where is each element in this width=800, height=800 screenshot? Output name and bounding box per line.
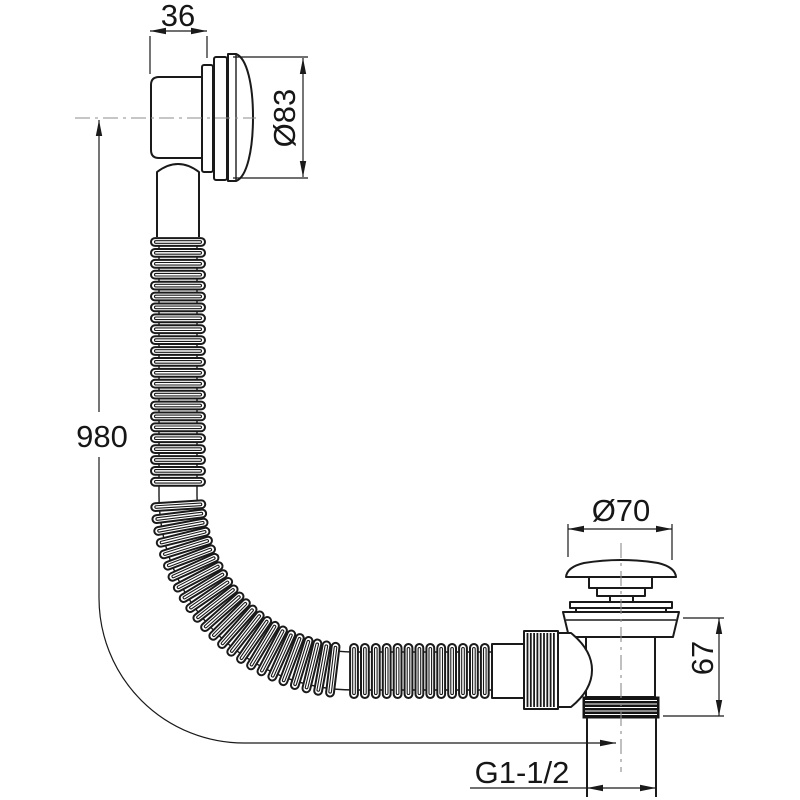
overflow-tube [157, 164, 199, 237]
overflow-assembly [151, 54, 253, 237]
outlet-pipe [587, 718, 656, 797]
hose-corrugation-ribs [151, 238, 489, 698]
bath-waste-overflow-drawing: 36 Ø83 980 Ø70 67 G1-1/2 [0, 0, 800, 800]
dimension-plug-diameter [568, 524, 672, 560]
hose-end-tube [492, 644, 524, 698]
flex-hose [151, 238, 494, 698]
label-plug-diameter: Ø70 [592, 493, 651, 528]
label-hose-length: 980 [76, 419, 128, 454]
label-waste-height: 67 [685, 641, 720, 675]
technical-drawing-canvas: 36 Ø83 980 Ø70 67 G1-1/2 [0, 0, 800, 800]
compression-nut-knurling [528, 633, 554, 707]
label-thread-size: G1-1/2 [475, 755, 570, 790]
dimension-overflow-width [150, 31, 207, 74]
label-overflow-width: 36 [161, 0, 195, 33]
label-overflow-diameter: Ø83 [267, 89, 302, 148]
